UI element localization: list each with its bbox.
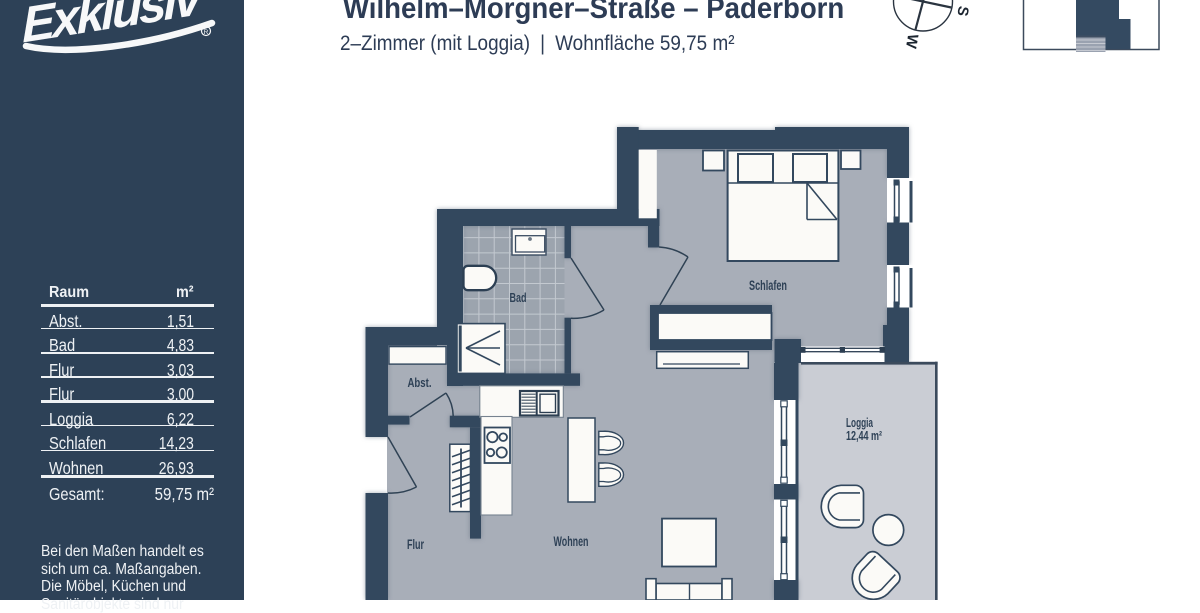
- svg-text:S: S: [953, 5, 971, 18]
- svg-text:R: R: [204, 29, 209, 36]
- svg-text:Wohnen: Wohnen: [554, 534, 589, 549]
- svg-text:Abst.: Abst.: [408, 376, 432, 390]
- svg-text:Bad: Bad: [510, 290, 527, 305]
- svg-text:12,44 m²: 12,44 m²: [846, 428, 882, 443]
- svg-text:Schlafen: Schlafen: [749, 278, 787, 293]
- svg-text:Flur: Flur: [407, 537, 424, 552]
- svg-text:W: W: [902, 33, 921, 51]
